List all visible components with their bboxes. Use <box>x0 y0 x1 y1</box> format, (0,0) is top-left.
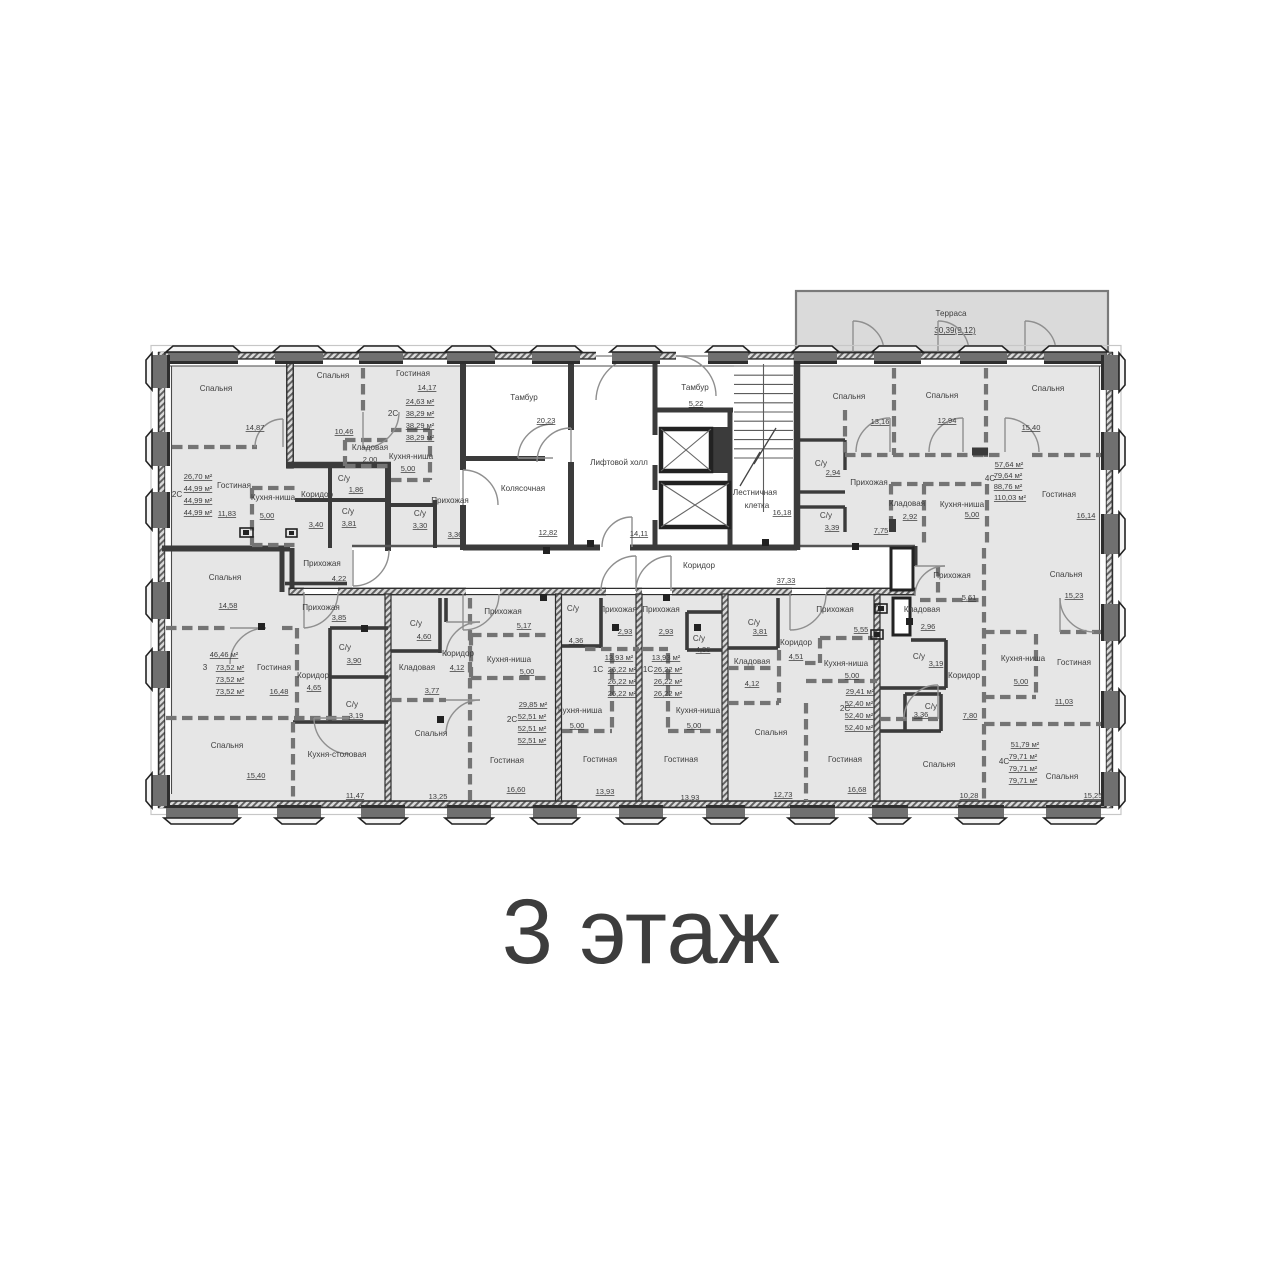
svg-text:14,58: 14,58 <box>219 601 238 610</box>
svg-text:5,61: 5,61 <box>962 593 977 602</box>
svg-text:Гостиная: Гостиная <box>217 481 251 490</box>
svg-text:13,25: 13,25 <box>429 792 448 801</box>
svg-text:Кладовая: Кладовая <box>399 663 435 672</box>
svg-text:5,17: 5,17 <box>517 621 532 630</box>
svg-text:Колясочная: Колясочная <box>501 484 545 493</box>
svg-text:15,23: 15,23 <box>1065 591 1084 600</box>
svg-text:Спальня: Спальня <box>415 729 448 738</box>
svg-text:3: 3 <box>203 663 208 672</box>
svg-text:Прихожая: Прихожая <box>302 603 340 612</box>
svg-text:79,71 м²: 79,71 м² <box>1009 752 1038 761</box>
svg-text:79,71 м²: 79,71 м² <box>1009 776 1038 785</box>
svg-text:Коридор: Коридор <box>780 638 812 647</box>
svg-text:Гостиная: Гостиная <box>490 756 524 765</box>
svg-text:Кладовая: Кладовая <box>889 499 925 508</box>
svg-text:4,12: 4,12 <box>450 663 465 672</box>
svg-text:73,52 м²: 73,52 м² <box>216 687 245 696</box>
svg-text:38,29 м²: 38,29 м² <box>406 409 435 418</box>
svg-text:Коридор: Коридор <box>301 490 333 499</box>
svg-text:С/у: С/у <box>693 634 706 643</box>
svg-text:5,00: 5,00 <box>520 667 535 676</box>
svg-text:Спальня: Спальня <box>1050 570 1083 579</box>
svg-text:2,92: 2,92 <box>903 512 918 521</box>
svg-text:Спальня: Спальня <box>1046 772 1079 781</box>
svg-text:38,29 м²: 38,29 м² <box>406 421 435 430</box>
svg-text:Гостиная: Гостиная <box>257 663 291 672</box>
svg-text:73,52 м²: 73,52 м² <box>216 675 245 684</box>
svg-text:Тамбур: Тамбур <box>510 393 538 402</box>
svg-text:5,00: 5,00 <box>401 464 416 473</box>
svg-text:7,80: 7,80 <box>963 711 978 720</box>
svg-text:52,40 м²: 52,40 м² <box>845 699 874 708</box>
svg-text:38,29 м²: 38,29 м² <box>406 433 435 442</box>
svg-text:2,94: 2,94 <box>826 468 841 477</box>
svg-text:4С: 4С <box>999 757 1010 766</box>
svg-text:С/у: С/у <box>567 604 580 613</box>
svg-text:С/у: С/у <box>414 509 427 518</box>
svg-text:1,86: 1,86 <box>349 485 364 494</box>
svg-text:С/у: С/у <box>913 652 926 661</box>
svg-text:2С: 2С <box>507 715 518 724</box>
svg-text:3,40: 3,40 <box>309 520 324 529</box>
svg-text:С/у: С/у <box>820 511 833 520</box>
svg-text:26,22 м²: 26,22 м² <box>608 665 637 674</box>
svg-text:3,90: 3,90 <box>347 656 362 665</box>
svg-text:4,36: 4,36 <box>696 645 711 654</box>
svg-text:52,51 м²: 52,51 м² <box>518 724 547 733</box>
svg-text:52,51 м²: 52,51 м² <box>518 736 547 745</box>
svg-text:С/у: С/у <box>338 474 351 483</box>
svg-text:2,93: 2,93 <box>659 627 674 636</box>
svg-text:46,46 м²: 46,46 м² <box>210 650 239 659</box>
svg-text:Кухня-ниша: Кухня-ниша <box>251 493 296 502</box>
svg-text:2,93: 2,93 <box>618 627 633 636</box>
svg-text:Гостиная: Гостиная <box>1042 490 1076 499</box>
svg-text:Спальня: Спальня <box>200 384 233 393</box>
svg-text:11,47: 11,47 <box>346 791 364 800</box>
svg-text:Тамбур: Тамбур <box>681 383 709 392</box>
svg-text:Спальня: Спальня <box>926 391 959 400</box>
svg-text:13,93 м²: 13,93 м² <box>652 653 681 662</box>
svg-text:44,99 м²: 44,99 м² <box>184 484 213 493</box>
svg-text:Гостиная: Гостиная <box>1057 658 1091 667</box>
svg-text:Спальня: Спальня <box>209 573 242 582</box>
svg-text:3 этаж: 3 этаж <box>502 881 780 983</box>
svg-text:Спальня: Спальня <box>317 371 350 380</box>
svg-text:клетка: клетка <box>745 501 770 510</box>
svg-text:26,22 м²: 26,22 м² <box>654 677 683 686</box>
svg-text:Прихожая: Прихожая <box>599 605 637 614</box>
svg-text:16,14: 16,14 <box>1077 511 1096 520</box>
svg-text:Коридор: Коридор <box>442 649 474 658</box>
svg-text:30,39(9,12): 30,39(9,12) <box>934 326 976 335</box>
svg-text:Спальня: Спальня <box>755 728 788 737</box>
svg-text:Гостиная: Гостиная <box>664 755 698 764</box>
svg-text:Прихожая: Прихожая <box>431 496 469 505</box>
svg-text:1С: 1С <box>593 665 604 674</box>
svg-text:Терраса: Терраса <box>935 309 967 318</box>
svg-text:3,19: 3,19 <box>929 659 944 668</box>
svg-text:Спальня: Спальня <box>211 741 244 750</box>
svg-text:52,40 м²: 52,40 м² <box>845 723 874 732</box>
svg-text:11,83: 11,83 <box>218 509 236 518</box>
svg-text:5,00: 5,00 <box>1014 677 1029 686</box>
svg-text:51,79 м²: 51,79 м² <box>1011 740 1040 749</box>
svg-text:Прихожая: Прихожая <box>642 605 680 614</box>
svg-text:5,00: 5,00 <box>260 511 275 520</box>
svg-text:13,93 м²: 13,93 м² <box>605 653 634 662</box>
svg-text:Кладовая: Кладовая <box>904 605 940 614</box>
svg-text:3,77: 3,77 <box>425 686 440 695</box>
svg-text:Кухня-ниша: Кухня-ниша <box>389 452 434 461</box>
svg-text:52,51 м²: 52,51 м² <box>518 712 547 721</box>
svg-text:3,36: 3,36 <box>914 710 929 719</box>
svg-text:Кладовая: Кладовая <box>352 443 388 452</box>
svg-text:Гостиная: Гостиная <box>583 755 617 764</box>
svg-text:44,99 м²: 44,99 м² <box>184 508 213 517</box>
svg-text:11,03: 11,03 <box>1055 697 1073 706</box>
svg-text:С/у: С/у <box>342 507 355 516</box>
svg-text:26,22 м²: 26,22 м² <box>654 689 683 698</box>
svg-text:10,28: 10,28 <box>960 791 979 800</box>
svg-text:2С: 2С <box>388 409 399 418</box>
svg-text:Коридор: Коридор <box>948 671 980 680</box>
svg-text:5,55: 5,55 <box>854 625 869 634</box>
svg-text:15,25: 15,25 <box>1084 791 1103 800</box>
svg-text:26,70 м²: 26,70 м² <box>184 472 213 481</box>
svg-text:20,23: 20,23 <box>537 416 556 425</box>
svg-text:12,94: 12,94 <box>938 416 957 425</box>
svg-text:26,22 м²: 26,22 м² <box>608 689 637 698</box>
svg-text:С/у: С/у <box>339 643 352 652</box>
svg-text:Кухня-ниша: Кухня-ниша <box>824 659 869 668</box>
svg-text:37,33: 37,33 <box>777 576 796 585</box>
svg-text:Кухня-ниша: Кухня-ниша <box>1001 654 1046 663</box>
svg-text:3,85: 3,85 <box>332 613 347 622</box>
svg-text:Кухня-ниша: Кухня-ниша <box>940 500 985 509</box>
svg-text:С/у: С/у <box>748 618 761 627</box>
svg-text:2,96: 2,96 <box>921 622 936 631</box>
svg-text:1С: 1С <box>643 665 654 674</box>
svg-text:4,22: 4,22 <box>332 574 347 583</box>
svg-text:5,00: 5,00 <box>570 721 585 730</box>
svg-text:4,65: 4,65 <box>307 683 322 692</box>
svg-text:26,22 м²: 26,22 м² <box>608 677 637 686</box>
svg-text:5,22: 5,22 <box>689 399 704 408</box>
svg-text:3,19: 3,19 <box>349 711 364 720</box>
svg-text:13,93: 13,93 <box>596 787 615 796</box>
svg-text:Кухня-столовая: Кухня-столовая <box>308 750 367 759</box>
svg-text:3,81: 3,81 <box>342 519 357 528</box>
svg-text:10,46: 10,46 <box>335 427 354 436</box>
svg-text:14,87: 14,87 <box>246 423 265 432</box>
svg-text:Кухня-ниша: Кухня-ниша <box>676 706 721 715</box>
svg-text:29,85 м²: 29,85 м² <box>519 700 548 709</box>
svg-text:29,41 м²: 29,41 м² <box>846 687 875 696</box>
svg-text:4,12: 4,12 <box>745 679 760 688</box>
svg-text:15,40: 15,40 <box>247 771 266 780</box>
svg-text:26,22 м²: 26,22 м² <box>654 665 683 674</box>
svg-text:3,81: 3,81 <box>753 627 768 636</box>
svg-text:2С: 2С <box>172 490 183 499</box>
svg-text:4,60: 4,60 <box>417 632 432 641</box>
svg-text:Лифтовой холл: Лифтовой холл <box>590 458 648 467</box>
svg-text:16,18: 16,18 <box>773 508 792 517</box>
svg-text:79,71 м²: 79,71 м² <box>1009 764 1038 773</box>
svg-text:57,64 м²: 57,64 м² <box>995 460 1024 469</box>
svg-text:14,11: 14,11 <box>630 529 648 538</box>
svg-text:С/у: С/у <box>815 459 828 468</box>
svg-text:16,48: 16,48 <box>270 687 289 696</box>
svg-text:3,30: 3,30 <box>413 521 428 530</box>
svg-text:88,76 м²: 88,76 м² <box>994 482 1023 491</box>
svg-text:73,52 м²: 73,52 м² <box>216 663 245 672</box>
svg-text:4,51: 4,51 <box>789 652 804 661</box>
svg-text:Прихожая: Прихожая <box>816 605 854 614</box>
svg-text:С/у: С/у <box>346 700 359 709</box>
svg-text:5,00: 5,00 <box>845 671 860 680</box>
svg-text:16,68: 16,68 <box>848 785 867 794</box>
svg-text:Лестничная: Лестничная <box>733 488 777 497</box>
svg-text:3,39: 3,39 <box>825 523 840 532</box>
svg-text:14,17: 14,17 <box>418 383 437 392</box>
svg-text:16,60: 16,60 <box>507 785 526 794</box>
svg-text:Гостиная: Гостиная <box>396 369 430 378</box>
svg-text:5,00: 5,00 <box>687 721 702 730</box>
svg-text:Спальня: Спальня <box>1032 384 1065 393</box>
svg-text:7,75: 7,75 <box>874 526 889 535</box>
svg-text:24,63 м²: 24,63 м² <box>406 397 435 406</box>
svg-text:Кухня-ниша: Кухня-ниша <box>487 655 532 664</box>
svg-text:110,03 м²: 110,03 м² <box>994 493 1027 502</box>
svg-text:Спальня: Спальня <box>923 760 956 769</box>
svg-text:15,40: 15,40 <box>1022 423 1041 432</box>
svg-text:5,00: 5,00 <box>965 510 980 519</box>
svg-text:Кладовая: Кладовая <box>734 657 770 666</box>
svg-text:Прихожая: Прихожая <box>303 559 341 568</box>
svg-text:Спальня: Спальня <box>833 392 866 401</box>
svg-text:12,82: 12,82 <box>539 528 558 537</box>
svg-text:Прихожая: Прихожая <box>484 607 522 616</box>
svg-text:Кухня-ниша: Кухня-ниша <box>558 706 603 715</box>
svg-text:Коридор: Коридор <box>297 671 329 680</box>
svg-text:Прихожая: Прихожая <box>850 478 888 487</box>
svg-text:13,16: 13,16 <box>871 417 890 426</box>
svg-text:3,36: 3,36 <box>448 530 463 539</box>
svg-text:2,00: 2,00 <box>363 455 378 464</box>
svg-text:Коридор: Коридор <box>683 561 715 570</box>
svg-text:4,36: 4,36 <box>569 636 584 645</box>
svg-text:44,99 м²: 44,99 м² <box>184 496 213 505</box>
svg-text:13,93: 13,93 <box>681 793 700 802</box>
svg-text:Гостиная: Гостиная <box>828 755 862 764</box>
svg-text:Прихожая: Прихожая <box>933 571 971 580</box>
svg-text:52,40 м²: 52,40 м² <box>845 711 874 720</box>
svg-text:12,73: 12,73 <box>774 790 793 799</box>
svg-text:79,64 м²: 79,64 м² <box>994 471 1023 480</box>
svg-text:С/у: С/у <box>410 619 423 628</box>
